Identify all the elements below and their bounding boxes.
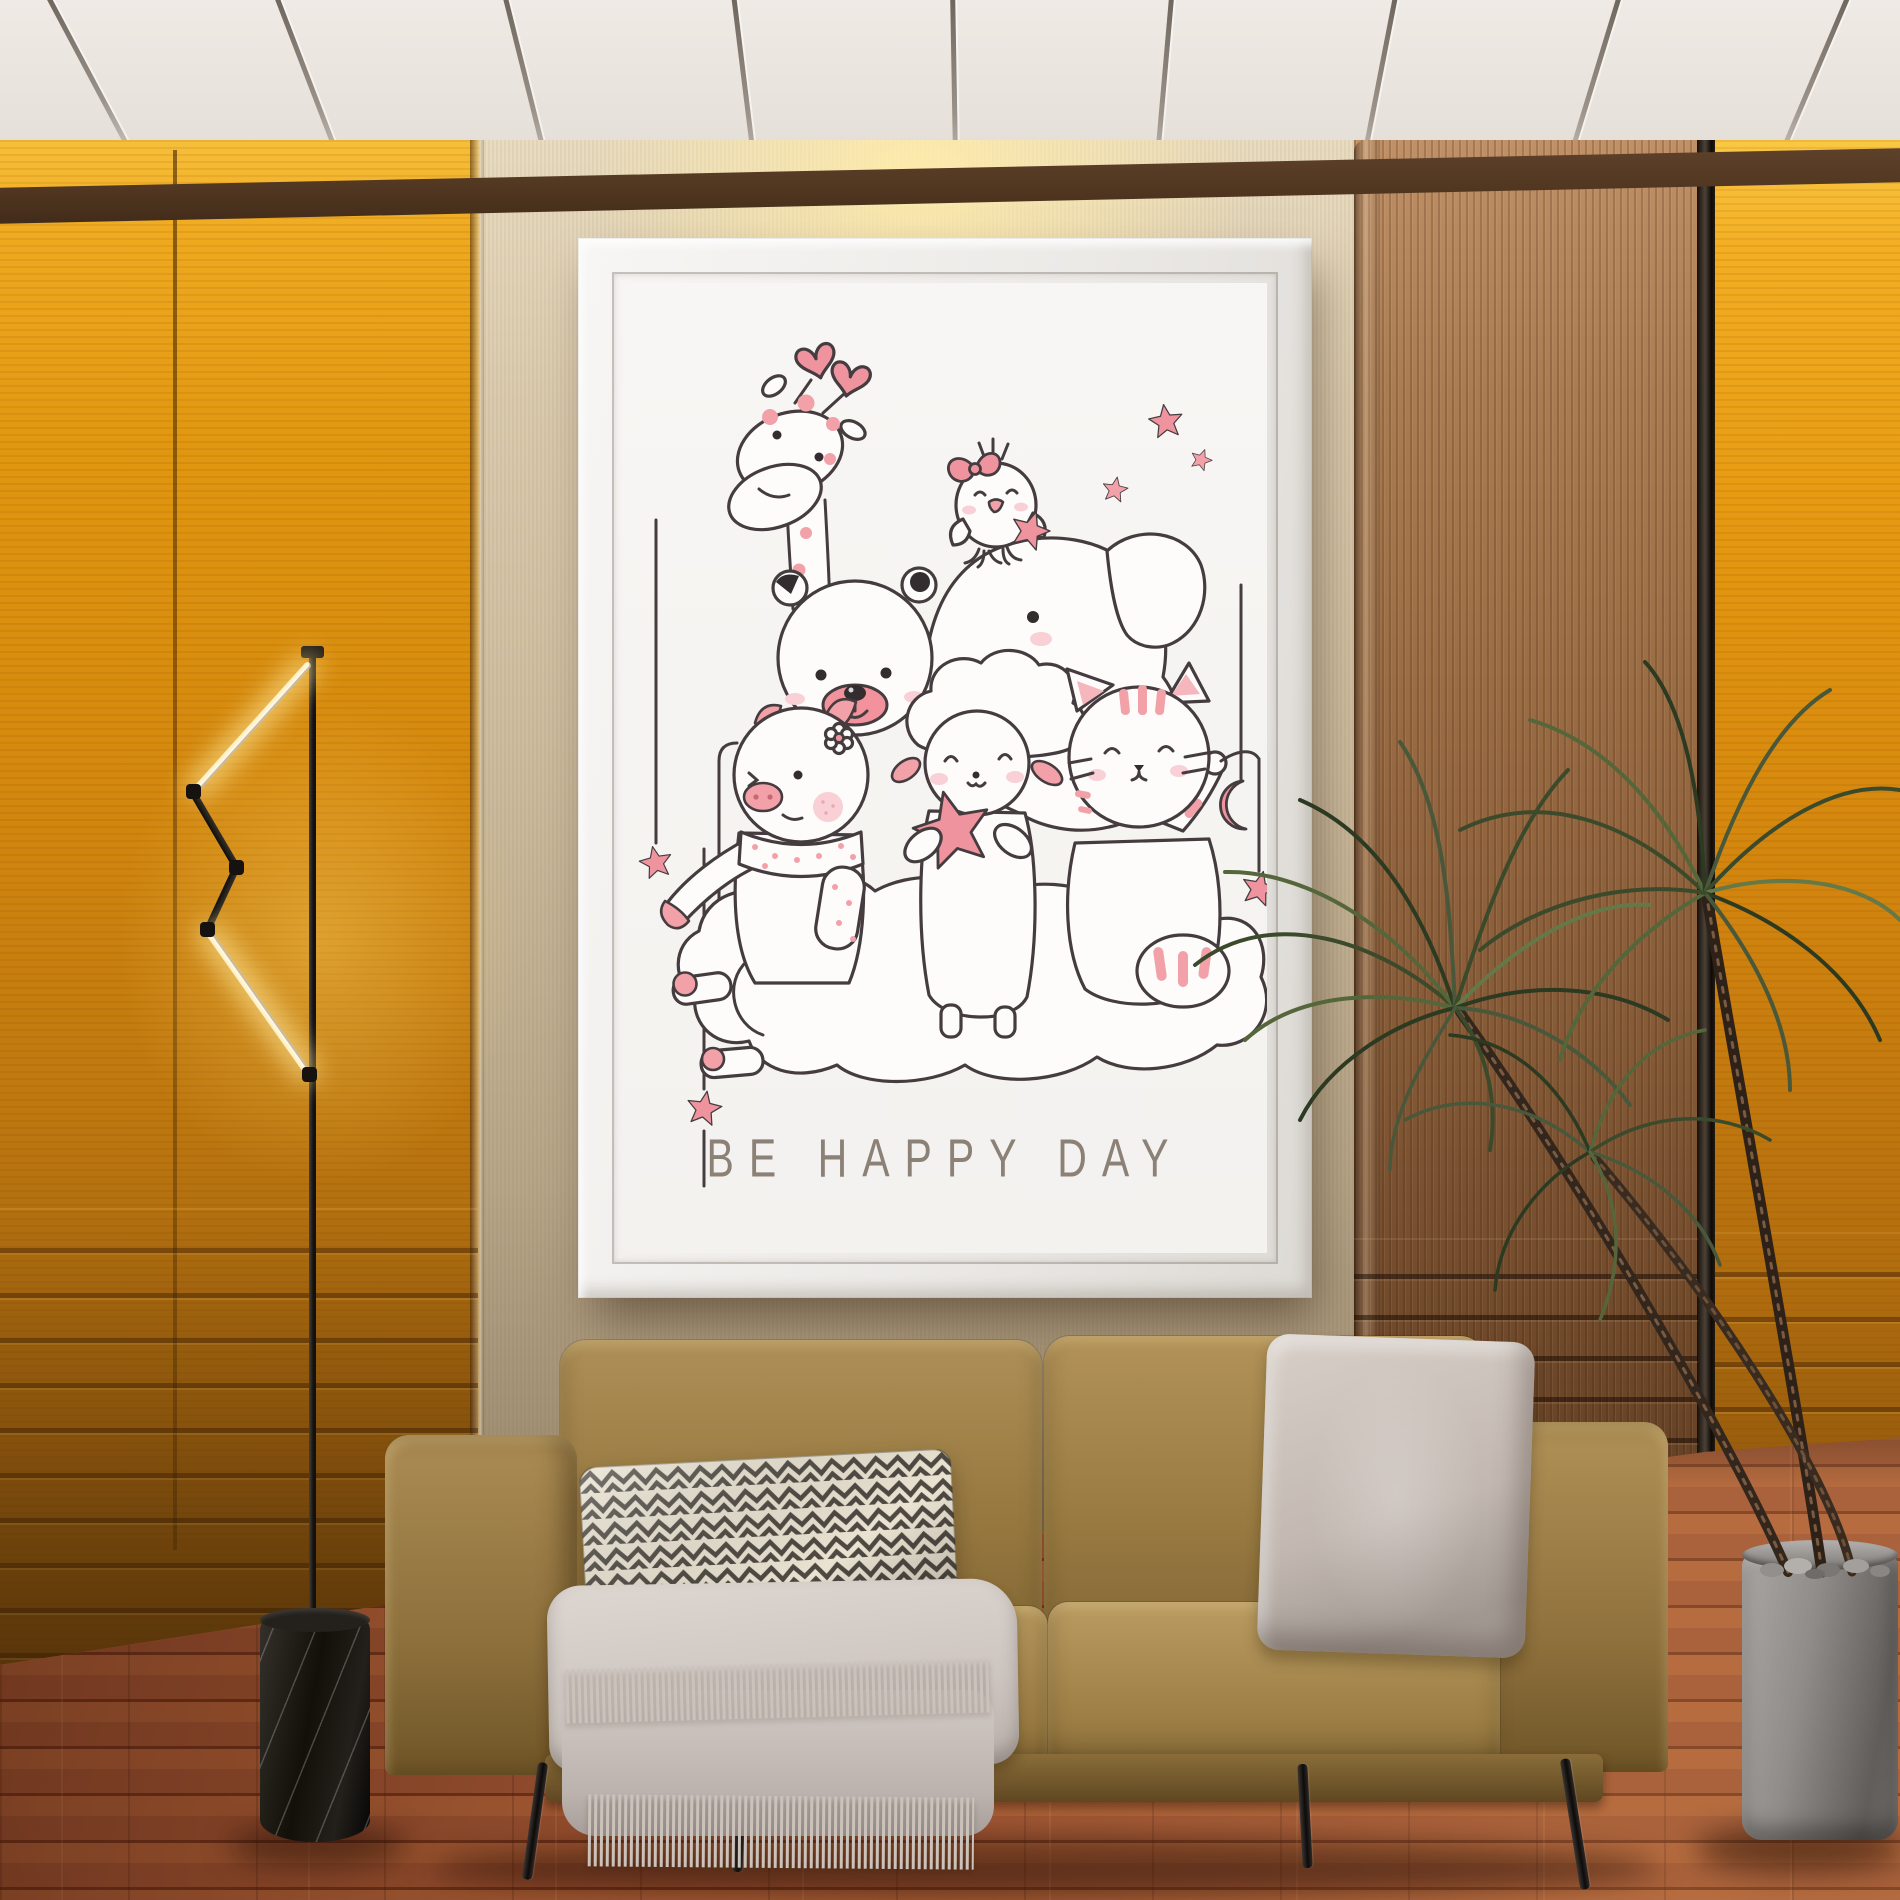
lamp-joint <box>229 860 244 875</box>
throw-fringe <box>588 1794 975 1869</box>
lamp-base-top <box>260 1608 370 1632</box>
potted-plant <box>1150 600 1900 1860</box>
lamp-pole <box>309 655 316 1630</box>
lamp-joint <box>200 922 215 937</box>
giraffe <box>720 342 872 609</box>
stars-top-right <box>1101 402 1215 502</box>
plant-trunks <box>1460 898 1852 1572</box>
pig-flower <box>826 724 853 754</box>
living-room-scene: BE HAPPY DAY <box>0 0 1900 1900</box>
plant-leaves <box>1195 662 1900 1320</box>
throw-fringe <box>565 1658 990 1723</box>
lamp-joint <box>186 784 201 799</box>
lamp-wall-glow <box>40 600 600 1280</box>
lamp-joint <box>302 1067 317 1082</box>
lamp-marble-base <box>260 1616 370 1842</box>
lamp-top-cap <box>301 646 324 658</box>
